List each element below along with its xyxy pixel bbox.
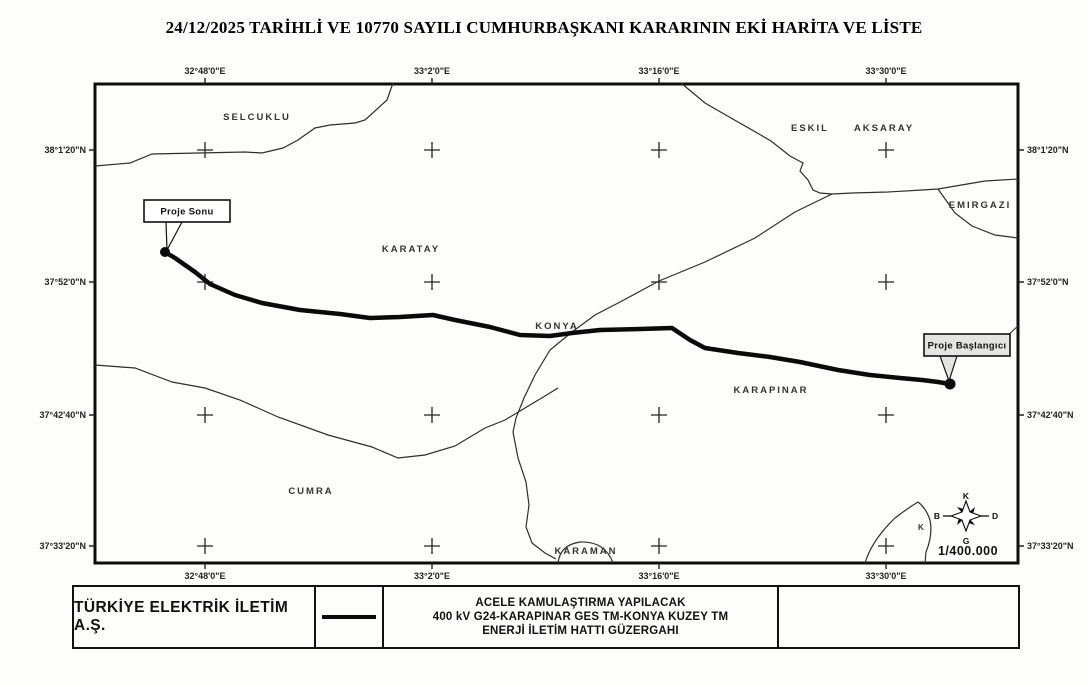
road-selcuklu [95, 83, 393, 166]
legend-empty-cell [779, 587, 1018, 647]
boundary-eskil-aksaray [681, 83, 832, 194]
lat-label-left-2: 37°52'0"N [44, 277, 86, 287]
lon-label-top-4: 33°30'0"E [865, 66, 906, 76]
legend-description-line: ACELE KAMULAŞTIRMA YAPILACAK [475, 596, 685, 610]
lat-label-right-2: 37°52'0"N [1027, 277, 1069, 287]
project-end-point [160, 247, 170, 257]
place-label-emirgazi: EMIRGAZI [949, 200, 1011, 211]
lon-label-top-1: 32°48'0"E [184, 66, 225, 76]
lat-label-left-3: 37°42'40"N [39, 410, 86, 420]
compass-east-label: D [992, 511, 998, 521]
lat-label-left-1: 38°1'20"N [44, 145, 86, 155]
legend-table: TÜRKİYE ELEKTRİK İLETİM A.Ş. ACELE KAMUL… [72, 585, 1020, 649]
boundary-emirgazi [938, 189, 1018, 238]
legend-description: ACELE KAMULAŞTIRMA YAPILACAK 400 kV G24-… [384, 587, 779, 647]
legend-organization: TÜRKİYE ELEKTRİK İLETİM A.Ş. [74, 587, 316, 647]
scanned-map-document: 24/12/2025 TARİHLİ VE 10770 SAYILI CUMHU… [0, 0, 1088, 686]
lat-label-right-1: 38°1'20"N [1027, 145, 1069, 155]
place-label-selcuklu: SELCUKLU [223, 112, 291, 123]
lon-label-bottom-1: 32°48'0"E [184, 571, 225, 581]
place-label-karatay: KARATAY [382, 244, 440, 255]
lat-label-right-4: 37°33'20"N [1027, 541, 1074, 551]
legend-symbol-cell [316, 587, 384, 647]
lon-label-bottom-3: 33°16'0"E [638, 571, 679, 581]
lon-label-top-3: 33°16'0"E [638, 66, 679, 76]
callout-project-start-label: Proje Başlangıcı [928, 341, 1007, 352]
compass-north-label: K [963, 491, 970, 501]
transmission-line-symbol [322, 615, 376, 619]
project-start-point [945, 379, 956, 390]
boundary-southeast-arc [865, 502, 931, 563]
lon-label-top-2: 33°2'0"E [414, 66, 450, 76]
map-scale: 1/400.000 [938, 544, 998, 558]
lat-label-left-4: 37°33'20"N [39, 541, 86, 551]
legend-description-line: 400 kV G24-KARAPINAR GES TM-KONYA KUZEY … [433, 610, 729, 624]
lon-label-bottom-4: 33°30'0"E [865, 571, 906, 581]
callout-pointer [166, 222, 182, 250]
callout-pointer [940, 356, 957, 381]
road-letter-label: K [918, 523, 924, 532]
compass-rose-icon: K G B D [934, 491, 998, 546]
compass-west-label: B [934, 511, 940, 521]
boundary-konya-diagonal [513, 194, 832, 559]
place-label-eskil: ESKIL [791, 123, 829, 134]
lat-label-right-3: 37°42'40"N [1027, 410, 1074, 420]
map-canvas: 32°48'0"E 33°2'0"E 33°16'0"E 33°30'0"E 3… [0, 0, 1088, 686]
boundary-cumra [95, 365, 558, 458]
legend-description-line: ENERJİ İLETİM HATTI GÜZERGAHI [482, 624, 679, 638]
transmission-line-route [165, 252, 950, 384]
place-label-karaman: KARAMAN [554, 546, 617, 557]
callout-project-end: Proje Sonu [144, 200, 230, 257]
place-label-konya: KONYA [535, 321, 578, 332]
place-label-cumra: CUMRA [288, 486, 333, 497]
place-label-aksaray: AKSARAY [854, 123, 914, 134]
boundary-aksaray-east [832, 179, 1018, 194]
callout-project-end-label: Proje Sonu [160, 207, 213, 218]
lon-label-bottom-2: 33°2'0"E [414, 571, 450, 581]
place-label-karapinar: KARAPINAR [734, 385, 809, 396]
